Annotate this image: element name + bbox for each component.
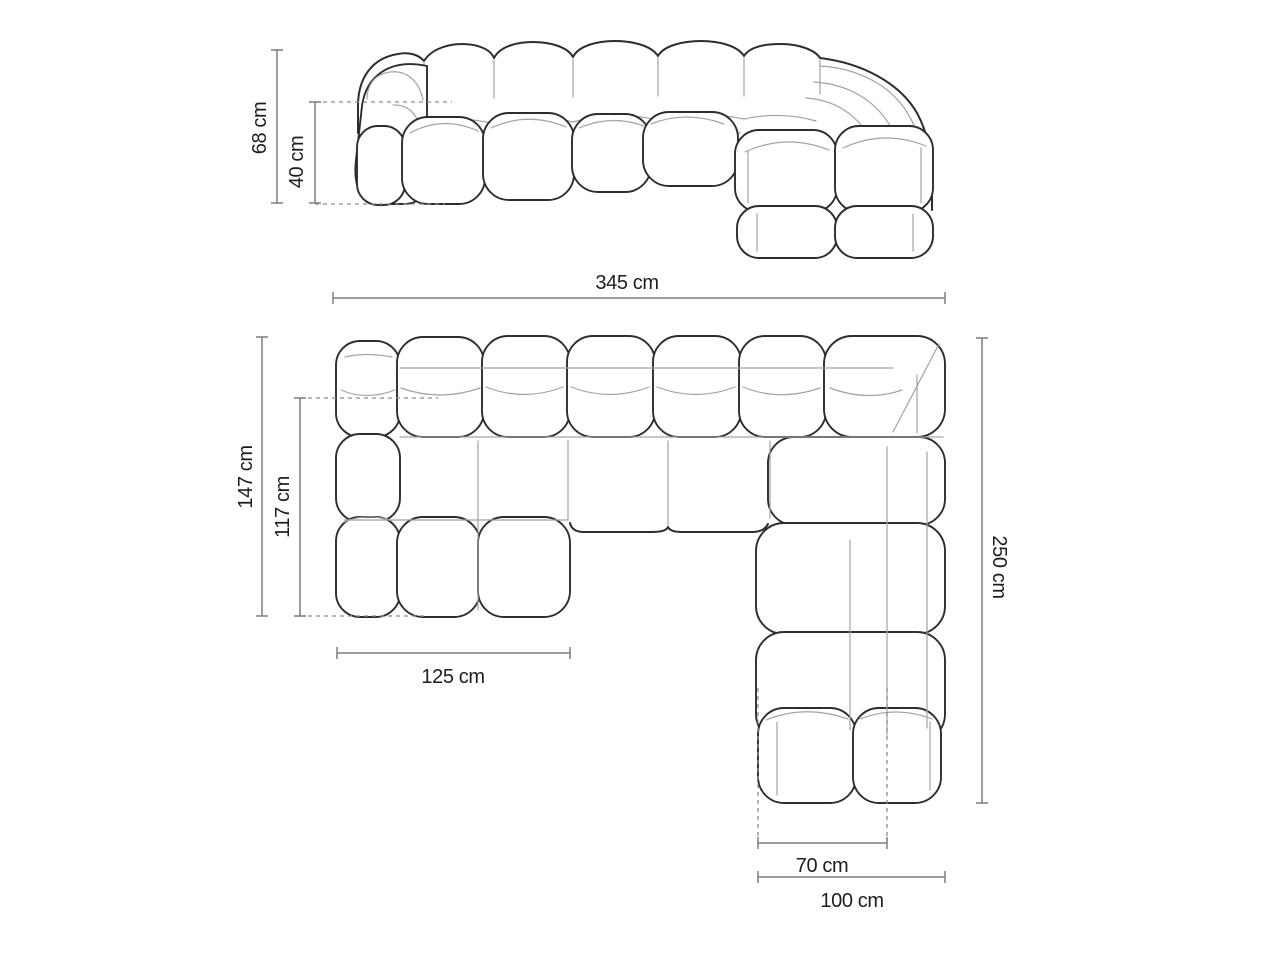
plan-right-leg-row xyxy=(768,437,945,525)
plan-chaise-bubble xyxy=(478,517,570,617)
diagram-canvas: 68 cm 40 cm 345 cm 147 cm 117 cm xyxy=(0,0,1280,960)
plan-front-bubble xyxy=(758,708,856,803)
dim-label-total-height: 68 cm xyxy=(249,102,271,154)
sofa-dimension-diagram: 68 cm 40 cm 345 cm 147 cm 117 cm xyxy=(0,0,1280,960)
dim-label-side-length: 250 cm xyxy=(988,535,1010,598)
plan-back-bubble xyxy=(567,336,655,437)
plan-front-bubble xyxy=(853,708,941,803)
front-chaise-bubble xyxy=(835,126,933,212)
dim-label-seat-height: 40 cm xyxy=(286,136,308,188)
dim-label-front-width-outer: 100 cm xyxy=(820,890,883,912)
front-chaise-bubble xyxy=(835,206,933,258)
front-armrest-bubble xyxy=(357,126,405,205)
plan-arm-bubble xyxy=(336,434,400,522)
dim-label-front-width-inner: 70 cm xyxy=(796,855,848,877)
plan-back-bubble xyxy=(482,336,570,437)
plan-back-bubble xyxy=(397,337,484,437)
plan-chaise-bubble xyxy=(336,517,400,617)
dim-label-total-width: 345 cm xyxy=(595,272,658,294)
dim-label-seat-depth: 117 cm xyxy=(272,476,294,538)
front-chaise-bubble xyxy=(737,206,837,258)
front-seat-bubble xyxy=(643,112,738,186)
front-seat-bubble xyxy=(402,117,485,204)
dim-label-total-depth: 147 cm xyxy=(235,445,257,508)
plan-back-bubble xyxy=(739,336,826,437)
plan-corner-module xyxy=(824,336,945,437)
plan-arm-top-bubble xyxy=(336,341,400,437)
dim-label-chaise-width: 125 cm xyxy=(421,666,484,688)
plan-back-bubble xyxy=(653,336,741,437)
plan-chaise-bubble xyxy=(397,517,480,617)
